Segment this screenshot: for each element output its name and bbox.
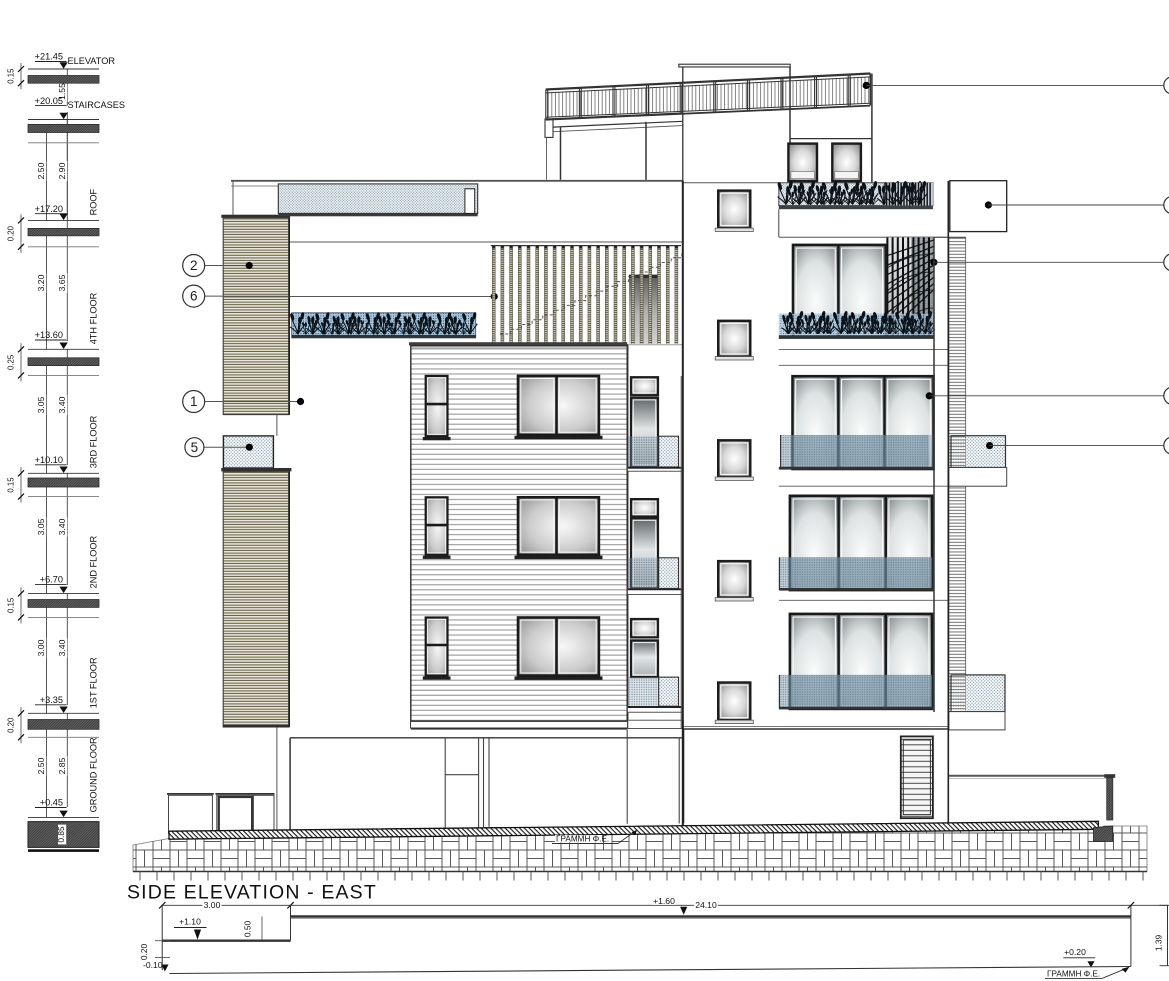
svg-text:0.85: 0.85 xyxy=(56,826,66,843)
svg-text:3.20: 3.20 xyxy=(36,274,46,291)
svg-text:24.10: 24.10 xyxy=(695,900,717,910)
svg-text:2: 2 xyxy=(190,258,198,273)
svg-text:+17.20: +17.20 xyxy=(35,204,63,214)
svg-text:5: 5 xyxy=(191,440,199,455)
svg-text:+20.05: +20.05 xyxy=(35,96,63,106)
svg-text:-0.10: -0.10 xyxy=(143,960,163,970)
svg-text:3.40: 3.40 xyxy=(57,518,67,535)
svg-text:ELEVATOR: ELEVATOR xyxy=(68,56,116,66)
svg-text:1ST FLOOR: 1ST FLOOR xyxy=(89,657,99,708)
svg-text:2.90: 2.90 xyxy=(57,162,67,179)
svg-text:2ND FLOOR: 2ND FLOOR xyxy=(89,535,99,588)
svg-text:0.20: 0.20 xyxy=(7,225,16,241)
svg-text:2.50: 2.50 xyxy=(36,162,46,179)
svg-text:0.20: 0.20 xyxy=(139,944,149,961)
svg-text:GROUND FLOOR: GROUND FLOOR xyxy=(89,737,99,812)
svg-text:3.00: 3.00 xyxy=(204,900,221,910)
svg-text:3.00: 3.00 xyxy=(36,639,46,656)
svg-text:SIDE ELEVATION - EAST: SIDE ELEVATION - EAST xyxy=(127,882,377,904)
svg-text:+21.45: +21.45 xyxy=(35,52,63,62)
svg-text:+0.45: +0.45 xyxy=(40,798,63,808)
svg-text:0.20: 0.20 xyxy=(7,717,16,733)
svg-text:3.05: 3.05 xyxy=(36,396,46,413)
svg-text:2.85: 2.85 xyxy=(57,757,67,774)
svg-text:ΓΡΑΜΜΗ Φ.Ε.: ΓΡΑΜΜΗ Φ.Ε. xyxy=(1047,970,1100,979)
svg-text:ΓΡΑΜΜΗ Φ.Ε.: ΓΡΑΜΜΗ Φ.Ε. xyxy=(556,835,609,844)
svg-text:3.05: 3.05 xyxy=(36,518,46,535)
svg-text:+0.20: +0.20 xyxy=(1064,947,1086,957)
svg-text:0.15: 0.15 xyxy=(7,68,16,84)
svg-text:+6.70: +6.70 xyxy=(40,575,63,585)
svg-text:+1.10: +1.10 xyxy=(179,917,201,927)
svg-text:1.39: 1.39 xyxy=(1154,935,1164,952)
svg-text:2.50: 2.50 xyxy=(36,757,46,774)
svg-text:+13.60: +13.60 xyxy=(35,330,63,340)
svg-text:6: 6 xyxy=(190,289,198,304)
svg-text:3.40: 3.40 xyxy=(57,396,67,413)
svg-text:0.15: 0.15 xyxy=(7,597,16,613)
svg-text:0.15: 0.15 xyxy=(7,477,16,493)
svg-text:0.50: 0.50 xyxy=(243,921,253,938)
svg-text:3.40: 3.40 xyxy=(57,639,67,656)
svg-text:1: 1 xyxy=(190,394,198,409)
svg-text:+10.10: +10.10 xyxy=(35,455,63,465)
svg-text:ROOF: ROOF xyxy=(89,188,99,215)
svg-text:+3.35: +3.35 xyxy=(40,695,63,705)
svg-text:4TH FLOOR: 4TH FLOOR xyxy=(89,292,99,344)
svg-text:3RD FLOOR: 3RD FLOOR xyxy=(89,415,99,468)
svg-text:0.25: 0.25 xyxy=(7,354,16,370)
svg-text:3.65: 3.65 xyxy=(57,274,67,291)
svg-text:STAIRCASES: STAIRCASES xyxy=(68,100,126,110)
svg-text:+1.60: +1.60 xyxy=(653,896,675,906)
